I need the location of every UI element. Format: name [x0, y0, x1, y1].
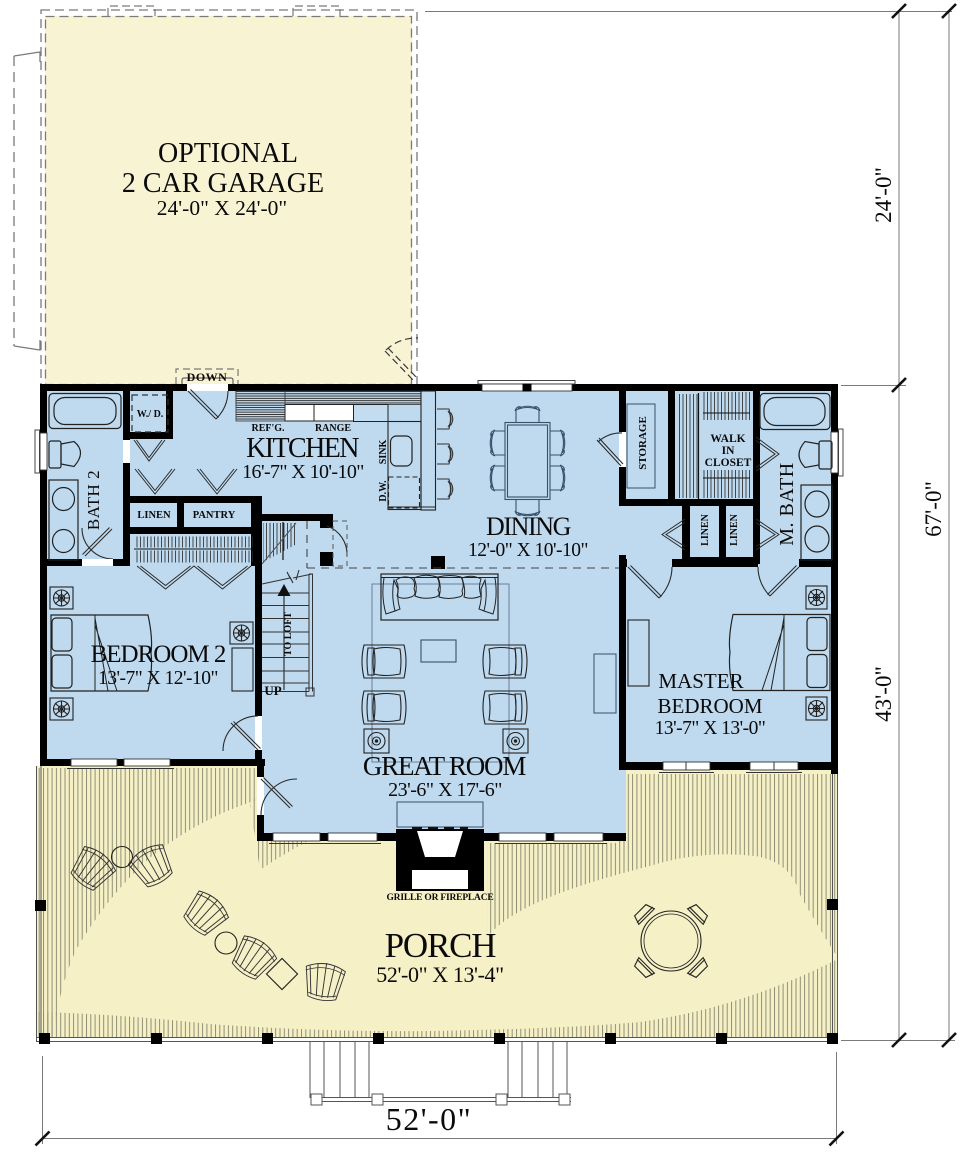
svg-text:BEDROOM: BEDROOM: [657, 694, 762, 718]
svg-text:D.W.: D.W.: [378, 480, 389, 502]
svg-text:SINK: SINK: [378, 440, 389, 465]
svg-text:BATH 2: BATH 2: [84, 470, 103, 530]
svg-text:16'-7" X 10'-10": 16'-7" X 10'-10": [242, 461, 364, 483]
svg-text:LINEN: LINEN: [700, 513, 711, 545]
svg-text:12'-0" X 10'-10": 12'-0" X 10'-10": [468, 540, 588, 561]
svg-text:M. BATH: M. BATH: [776, 462, 798, 546]
svg-text:24'-0" X 24'-0": 24'-0" X 24'-0": [157, 196, 287, 220]
svg-text:GREAT ROOM: GREAT ROOM: [363, 751, 526, 781]
svg-text:UP: UP: [264, 683, 281, 698]
svg-text:WALK: WALK: [710, 433, 745, 445]
svg-text:MASTER: MASTER: [658, 669, 743, 693]
svg-text:STORAGE: STORAGE: [637, 416, 649, 470]
svg-text:67'-0": 67'-0": [921, 481, 946, 537]
svg-text:PANTRY: PANTRY: [193, 510, 236, 521]
svg-text:KITCHEN: KITCHEN: [246, 433, 359, 464]
svg-text:LINEN: LINEN: [729, 513, 740, 545]
svg-text:LINEN: LINEN: [137, 510, 171, 521]
svg-text:24'-0": 24'-0": [871, 167, 896, 223]
svg-text:43'-0": 43'-0": [871, 666, 896, 722]
svg-text:52'-0" X 13'-4": 52'-0" X 13'-4": [376, 962, 503, 987]
svg-text:13'-7" X 12'-10": 13'-7" X 12'-10": [98, 668, 218, 689]
svg-text:13'-7" X 13'-0": 13'-7" X 13'-0": [655, 718, 766, 739]
svg-text:DOWN: DOWN: [187, 370, 228, 384]
svg-text:TO LOFT: TO LOFT: [283, 612, 294, 656]
svg-text:2 CAR GARAGE: 2 CAR GARAGE: [122, 168, 324, 199]
svg-text:GRILLE OR FIREPLACE: GRILLE OR FIREPLACE: [386, 893, 493, 903]
svg-text:23'-6" X 17'-6": 23'-6" X 17'-6": [388, 779, 502, 801]
svg-text:PORCH: PORCH: [385, 926, 497, 965]
svg-text:DINING: DINING: [486, 512, 571, 541]
svg-text:BEDROOM 2: BEDROOM 2: [91, 641, 226, 668]
svg-text:W./ D.: W./ D.: [137, 409, 164, 420]
svg-text:52'-0": 52'-0": [386, 1101, 472, 1137]
svg-text:IN: IN: [722, 445, 735, 457]
svg-text:OPTIONAL: OPTIONAL: [158, 138, 298, 169]
svg-text:CLOSET: CLOSET: [705, 457, 752, 469]
